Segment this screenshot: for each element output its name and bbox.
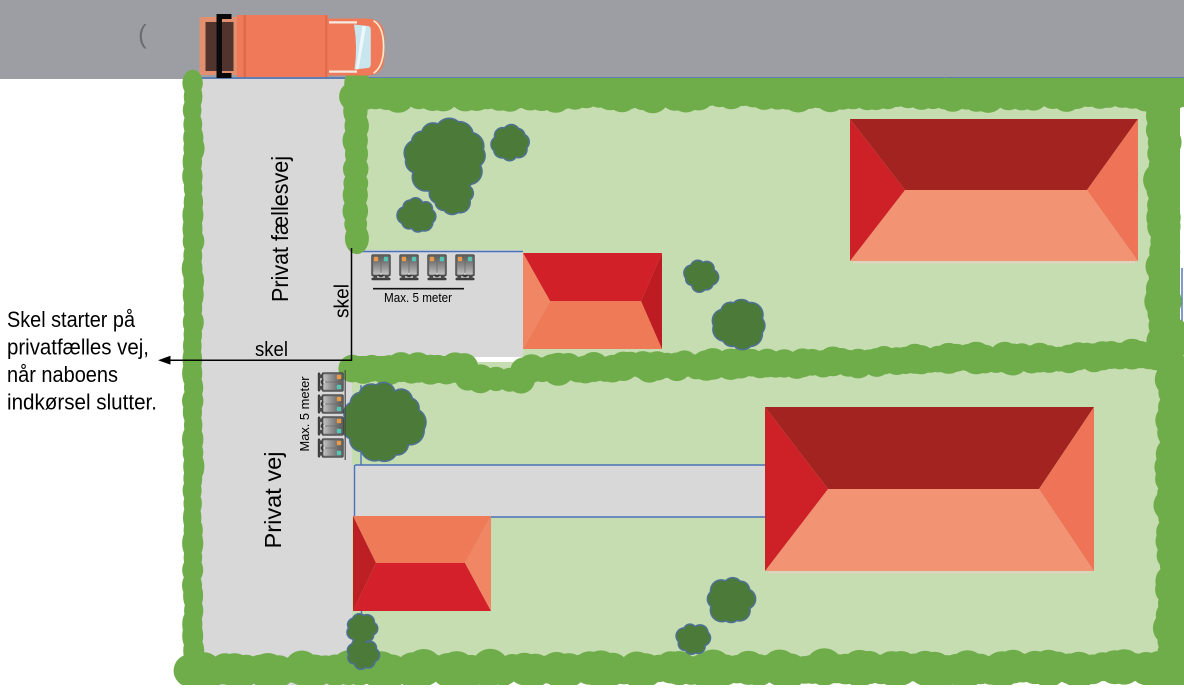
svg-text:Skel starter på: Skel starter på — [7, 307, 136, 332]
svg-text:skel: skel — [332, 284, 354, 318]
svg-text:Max. 5 meter: Max. 5 meter — [384, 290, 453, 305]
svg-text:når naboens: når naboens — [7, 362, 118, 387]
svg-text:indkørsel slutter.: indkørsel slutter. — [7, 390, 157, 415]
svg-text:Max. 5 meter: Max. 5 meter — [297, 376, 312, 452]
svg-text:(: ( — [138, 19, 147, 49]
svg-text:skel: skel — [255, 339, 288, 361]
svg-text:Privat vej: Privat vej — [260, 452, 286, 549]
svg-text:Privat fællesvej: Privat fællesvej — [267, 156, 293, 302]
svg-text:privatfælles vej,: privatfælles vej, — [7, 335, 149, 360]
